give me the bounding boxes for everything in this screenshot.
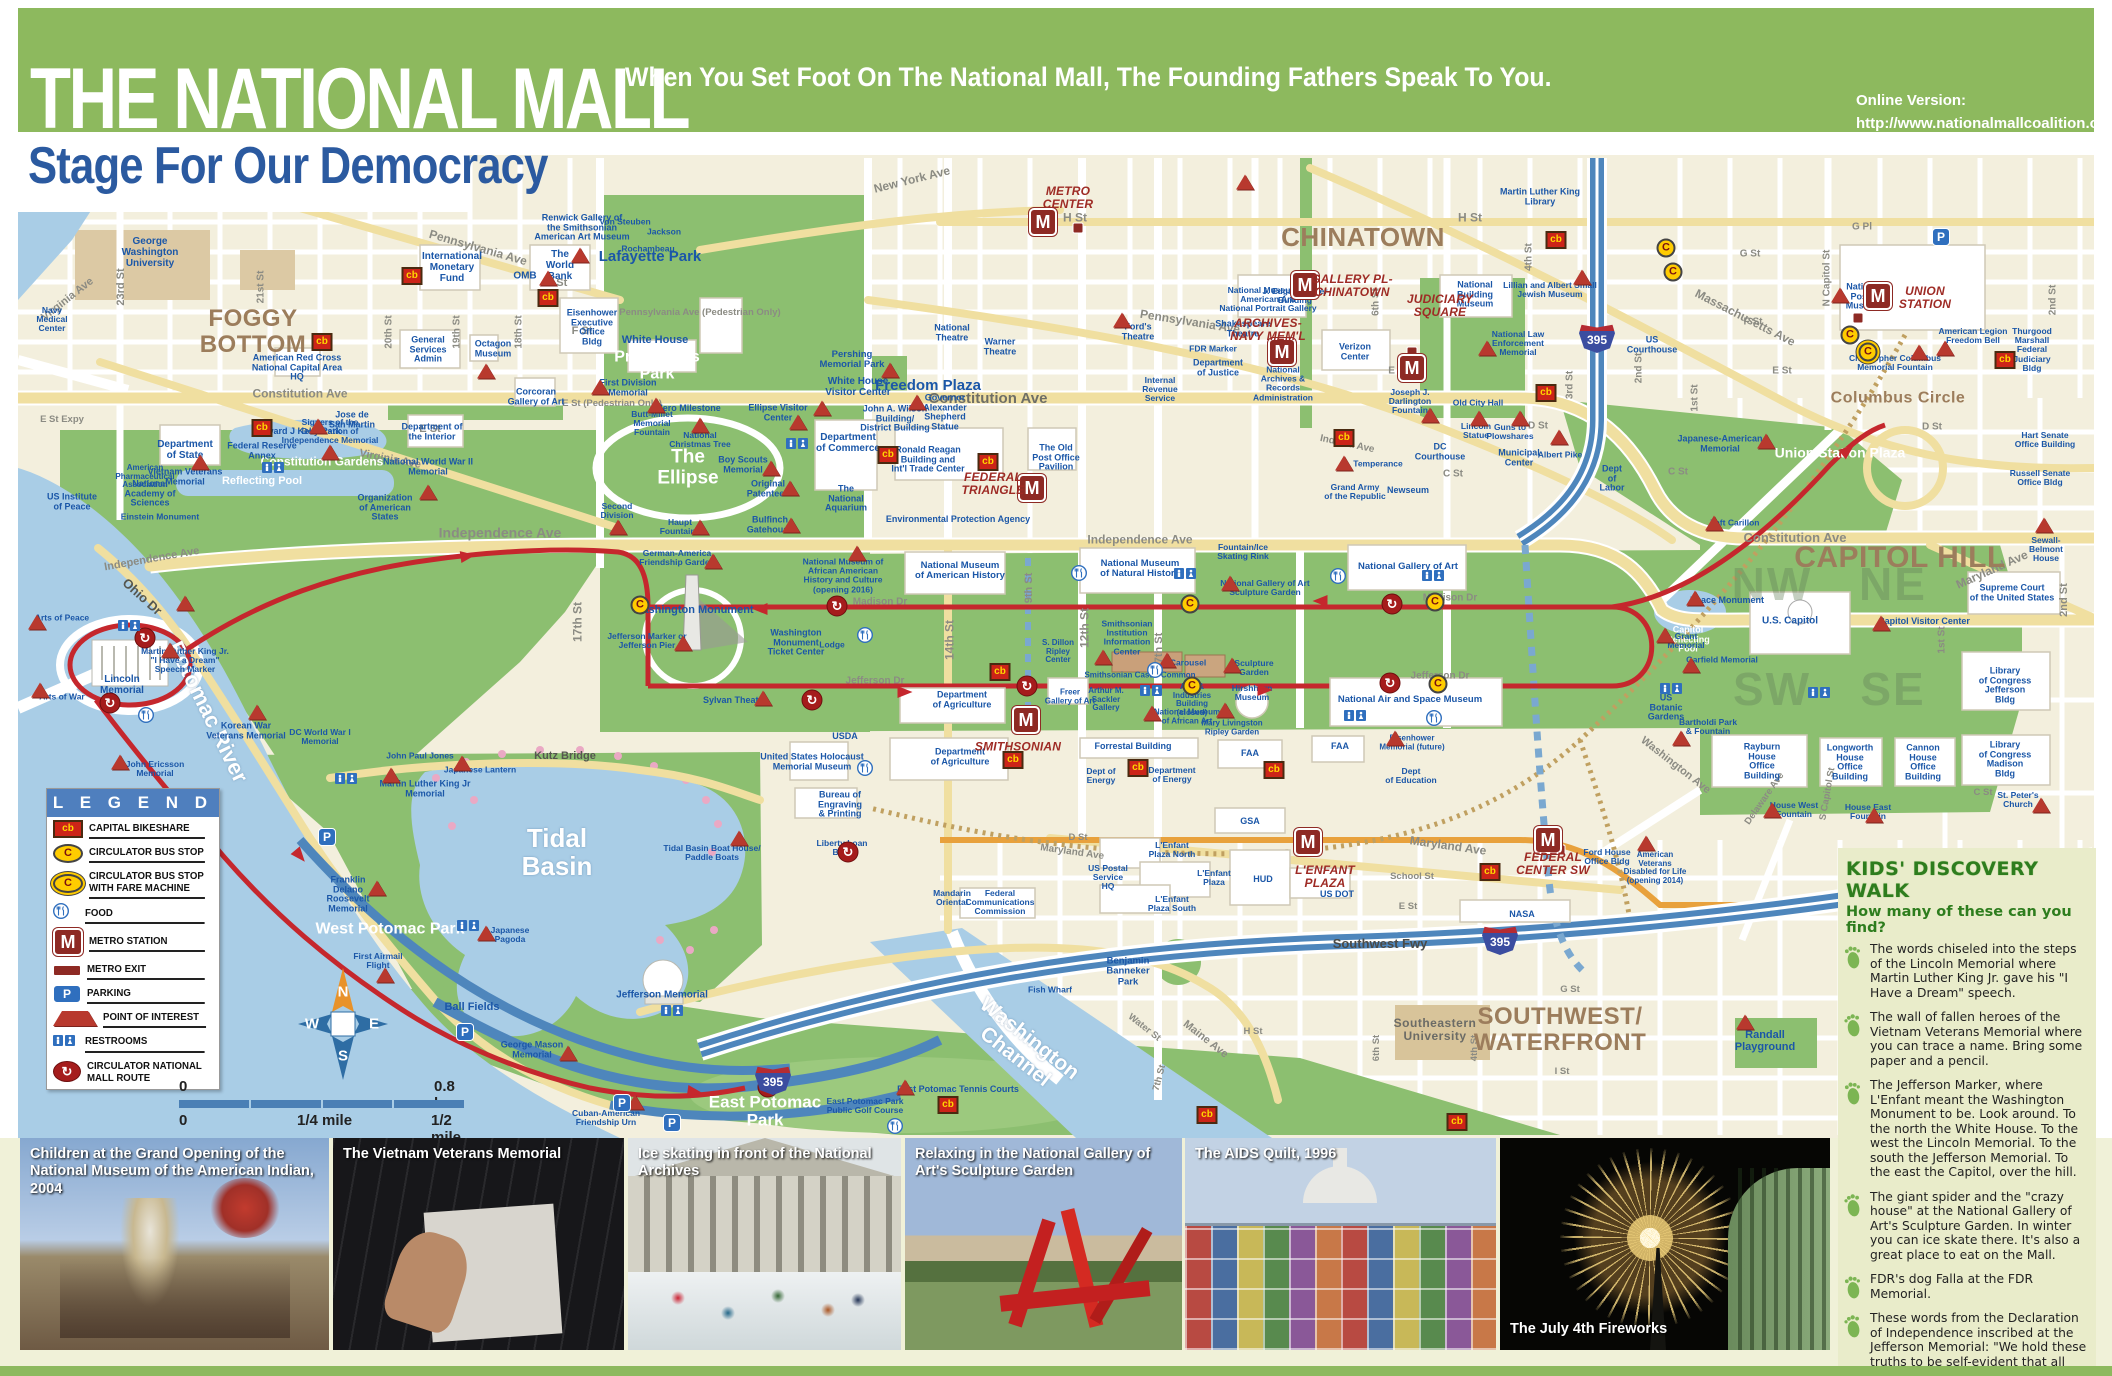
compass-rose: N S W E	[298, 968, 388, 1080]
photo-caption: The AIDS Quilt, 1996	[1195, 1146, 1488, 1163]
compass-n: N	[338, 984, 349, 1001]
legend: cbCAPITAL BIKESHARE	[47, 817, 219, 841]
kids-discovery-walk-panel: KIDS' DISCOVERY WALK How many of these c…	[1838, 848, 2096, 1376]
legend: L E G E N D cbCAPITAL BIKESHARECCIRCULAT…	[46, 788, 220, 1090]
legend: METRO EXIT	[47, 958, 219, 982]
legend: CCIRCULATOR BUS STOP WITH FARE MACHINE	[47, 865, 219, 901]
photo-aids-quilt: The AIDS Quilt, 1996	[1185, 1138, 1496, 1350]
legend: RESTROOMS	[47, 1030, 219, 1054]
scale-bar-graphic	[179, 1100, 464, 1108]
legend: CCIRCULATOR BUS STOP	[47, 841, 219, 865]
kids: The Jefferson Marker, where L'Enfant mea…	[1846, 1078, 2088, 1180]
kids: The wall of fallen heroes of the Vietnam…	[1846, 1010, 2088, 1068]
photo-ice-skating-archives: Ice skating in front of the National Arc…	[628, 1138, 901, 1350]
photo-caption: Relaxing in the National Gallery of Art'…	[915, 1146, 1174, 1181]
compass-w: W	[305, 1016, 319, 1033]
kids: The giant spider and the "crazy house" a…	[1846, 1190, 2088, 1263]
scale-km-zero: 0	[179, 1078, 187, 1095]
poster-page: THE NATIONAL MALL When You Set Foot On T…	[0, 0, 2112, 1376]
photo-caption: The July 4th Fireworks	[1510, 1321, 1822, 1338]
kids: FDR's dog Falla at the FDR Memorial.	[1846, 1272, 2088, 1301]
legend: POINT OF INTEREST	[47, 1006, 219, 1030]
photo-caption: Children at the Grand Opening of the Nat…	[30, 1146, 321, 1198]
compass-e: E	[369, 1016, 379, 1033]
scale-bar: 0 0.8 km 0 1/4 mile 1/2 mile	[179, 1078, 479, 1130]
photo-caption: The Vietnam Veterans Memorial	[343, 1146, 616, 1163]
compass-s: S	[338, 1048, 348, 1065]
photo-caption: Ice skating in front of the National Arc…	[638, 1146, 893, 1181]
legend: PPARKING	[47, 982, 219, 1006]
photo-museum-american-indian: Children at the Grand Opening of the Nat…	[20, 1138, 329, 1350]
scale-quarter-mile: 1/4 mile	[297, 1112, 352, 1129]
scale-mi-zero: 0	[179, 1112, 187, 1129]
kids-title: KIDS' DISCOVERY WALK	[1846, 858, 2088, 902]
online-version-url[interactable]: http://www.nationalmallcoalition.org	[1856, 113, 2112, 136]
photo-sculpture-garden: Relaxing in the National Gallery of Art'…	[905, 1138, 1182, 1350]
legend-title: L E G E N D	[47, 789, 219, 817]
header-tagline: When You Set Foot On The National Mall, …	[625, 62, 1551, 93]
bottom-green-bar	[0, 1366, 2112, 1376]
online-version-label: Online Version:	[1856, 90, 2112, 113]
online-version: Online Version: http://www.nationalmallc…	[1856, 90, 2112, 135]
legend: MMETRO STATION	[47, 926, 219, 958]
legend: FOOD	[47, 901, 219, 926]
page-subtitle: Stage For Our Democracy	[28, 136, 548, 196]
kids: The words chiseled into the steps of the…	[1846, 942, 2088, 1000]
photo-july4-fireworks: The July 4th Fireworks	[1500, 1138, 1830, 1350]
photo-vietnam-memorial: The Vietnam Veterans Memorial	[333, 1138, 624, 1350]
kids-items: The words chiseled into the steps of the…	[1846, 942, 2088, 1376]
legend-items: cbCAPITAL BIKESHARECCIRCULATOR BUS STOPC…	[47, 817, 219, 1089]
kids-subtitle: How many of these can you find?	[1846, 904, 2088, 936]
